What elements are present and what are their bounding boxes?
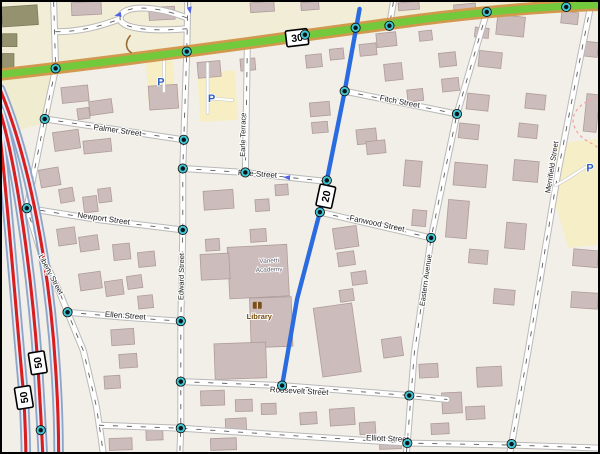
building (313, 303, 361, 377)
label-edward-street: Edward Street (176, 252, 186, 300)
building (250, 2, 274, 13)
label-ellen-street: Ellen Street (105, 310, 147, 322)
building (431, 423, 449, 435)
route-node[interactable] (241, 168, 250, 177)
route-node[interactable] (40, 114, 49, 123)
route-node-center (302, 32, 308, 38)
map-window: Palmer Street Newport Street Pine Street… (0, 0, 600, 454)
building (104, 279, 124, 296)
route-node[interactable] (176, 317, 185, 326)
label-palmer-street: Palmer Street (93, 123, 143, 139)
route-node[interactable] (22, 204, 31, 213)
building (403, 160, 422, 187)
map-canvas[interactable]: Palmer Street Newport Street Pine Street… (2, 2, 598, 452)
building (52, 129, 80, 151)
route-node[interactable] (300, 30, 309, 39)
route-node[interactable] (182, 47, 191, 56)
building (453, 162, 488, 188)
building (200, 390, 224, 406)
building (419, 363, 439, 378)
building (83, 138, 112, 154)
route-node-center (24, 205, 30, 211)
building (384, 63, 404, 82)
building (376, 32, 397, 48)
building (250, 228, 267, 242)
building (493, 289, 515, 306)
route-node-center (508, 441, 514, 447)
building (79, 235, 100, 252)
route-node-center (38, 427, 44, 433)
building (505, 222, 527, 249)
building (255, 199, 270, 212)
route-node-center (484, 9, 490, 15)
building (210, 438, 236, 451)
building (476, 366, 502, 387)
route-node-center (178, 425, 184, 431)
building (2, 5, 38, 27)
building (381, 337, 403, 358)
building (419, 30, 433, 41)
building (98, 188, 113, 203)
building (261, 403, 276, 414)
building (366, 140, 386, 155)
shield-route-50-a: 50 (28, 351, 47, 375)
shield-route-50-b: 50 (14, 385, 33, 409)
building (205, 238, 220, 251)
route-node[interactable] (36, 426, 45, 435)
building (518, 123, 538, 139)
building (572, 249, 598, 268)
route-node[interactable] (403, 439, 412, 448)
building (442, 392, 463, 414)
building (119, 353, 138, 368)
route-node-center (42, 116, 48, 122)
building (2, 34, 17, 47)
route-node-center (454, 111, 460, 117)
building (458, 123, 479, 140)
parking-icon: P (157, 76, 164, 88)
building (301, 2, 319, 11)
route-node-center (386, 23, 392, 29)
route-node-center (428, 235, 434, 241)
route-node[interactable] (452, 109, 461, 118)
building (137, 251, 155, 268)
building (89, 99, 114, 116)
label-fanwood-street: Fanwood Street (349, 213, 406, 234)
shield-route-20: 20 (316, 184, 336, 209)
label-eastern-avenue: Eastern Avenue (418, 254, 434, 307)
building (235, 399, 252, 411)
building (311, 121, 328, 133)
route-node-center (64, 309, 70, 315)
route-node-center (563, 4, 569, 10)
route-node[interactable] (322, 176, 331, 185)
building (78, 271, 102, 291)
building (38, 167, 61, 188)
route-node-center (279, 382, 285, 388)
route-node[interactable] (427, 233, 436, 242)
route-node-center (180, 227, 186, 233)
route-node[interactable] (507, 440, 516, 449)
library-icon (253, 302, 262, 309)
building (351, 271, 368, 286)
route-node[interactable] (482, 7, 491, 16)
building (203, 189, 234, 210)
route-node[interactable] (405, 391, 414, 400)
route-node[interactable] (176, 424, 185, 433)
label-academy-line2: Academy (256, 266, 284, 274)
building (337, 251, 356, 267)
building (214, 342, 267, 379)
parking-icon: P (586, 163, 593, 175)
building (2, 54, 14, 69)
building (111, 328, 135, 345)
building (332, 225, 359, 249)
route-node-center (242, 169, 248, 175)
building (104, 375, 121, 389)
route-node[interactable] (179, 135, 188, 144)
route-node[interactable] (63, 308, 72, 317)
label-earle-terrace: Earle Terrace (238, 113, 248, 157)
route-node-center (317, 209, 323, 215)
building (571, 292, 598, 310)
route-node-center (52, 65, 58, 71)
route-node-center (406, 392, 412, 398)
building (200, 253, 230, 280)
route-node-center (352, 25, 358, 31)
route-node-center (180, 165, 186, 171)
route-node-center (178, 378, 184, 384)
building (83, 195, 99, 212)
building (77, 107, 90, 119)
route-node[interactable] (178, 225, 187, 234)
building (109, 438, 132, 451)
label-academy-line1: Vanetti (259, 257, 279, 265)
building (275, 184, 289, 196)
building (466, 406, 486, 420)
route-node-center (184, 48, 190, 54)
route-node[interactable] (315, 208, 324, 217)
building (305, 54, 322, 68)
parking-icon: P (208, 93, 215, 105)
route-node-center (178, 318, 184, 324)
building (309, 101, 330, 117)
building (441, 77, 459, 92)
route-node[interactable] (385, 21, 394, 30)
route-node-center (324, 177, 330, 183)
building (126, 275, 143, 290)
building (468, 249, 488, 264)
building (300, 412, 318, 425)
building (412, 210, 427, 227)
building (57, 227, 77, 246)
building (71, 2, 101, 16)
building (398, 2, 419, 11)
building (137, 295, 153, 309)
route-node-center (404, 440, 410, 446)
route-node[interactable] (340, 87, 349, 96)
svg-text:50: 50 (33, 356, 46, 369)
svg-text:50: 50 (19, 391, 32, 404)
label-newport-street: Newport Street (77, 210, 131, 226)
building (438, 52, 456, 68)
building (513, 160, 540, 183)
building (59, 187, 75, 203)
building (445, 199, 469, 238)
street-labels: Palmer Street Newport Street Pine Street… (37, 93, 561, 443)
building (561, 11, 579, 25)
building (112, 243, 130, 261)
building (339, 289, 354, 303)
building (466, 93, 489, 111)
route-node[interactable] (178, 164, 187, 173)
route-node[interactable] (176, 377, 185, 386)
label-library: Library (247, 312, 273, 321)
building (329, 408, 355, 427)
building (525, 93, 546, 110)
building (496, 14, 526, 37)
route-node[interactable] (51, 64, 60, 73)
route-node-center (181, 137, 187, 143)
route-node-center (342, 88, 348, 94)
route-node[interactable] (562, 2, 571, 11)
route-node[interactable] (351, 23, 360, 32)
building (329, 48, 344, 60)
route-node[interactable] (278, 381, 287, 390)
building (359, 43, 377, 57)
building (478, 50, 502, 68)
building (61, 85, 89, 104)
